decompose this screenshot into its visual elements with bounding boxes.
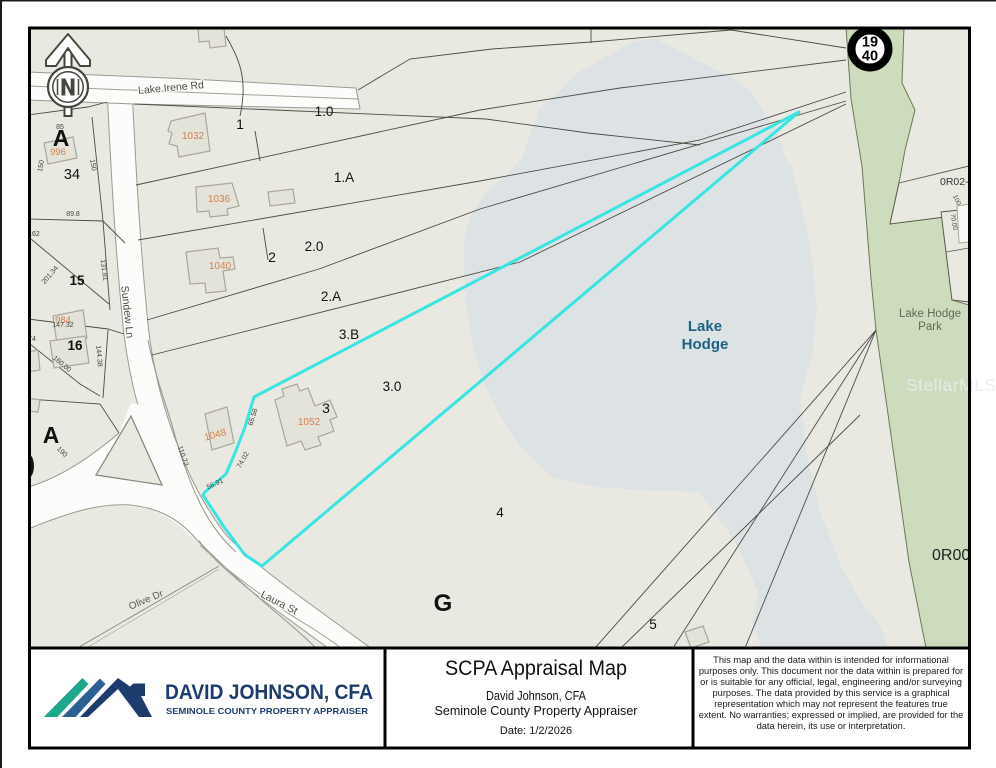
svg-text:A: A xyxy=(43,422,60,448)
svg-text:1.A: 1.A xyxy=(334,170,354,185)
svg-text:1040: 1040 xyxy=(209,261,232,272)
svg-text:3.B: 3.B xyxy=(339,327,359,342)
svg-text:or is suitable for any officia: or is suitable for any official, legal, … xyxy=(700,677,962,687)
svg-text:SEMINOLE COUNTY PROPERTY APPRA: SEMINOLE COUNTY PROPERTY APPRAISER xyxy=(166,706,368,716)
svg-text:Lake: Lake xyxy=(688,318,722,335)
svg-text:4: 4 xyxy=(496,505,504,520)
svg-text:G: G xyxy=(434,590,453,617)
svg-text:data herein, its use or interp: data herein, its use or interpretation. xyxy=(757,721,906,731)
svg-text:representation which may not r: representation which may not represent t… xyxy=(714,699,948,709)
svg-text:David Johnson, CFA: David Johnson, CFA xyxy=(486,688,586,703)
svg-text:15: 15 xyxy=(69,273,85,288)
svg-text:Lake Hodge: Lake Hodge xyxy=(899,308,961,320)
svg-text:DAVID JOHNSON, CFA: DAVID JOHNSON, CFA xyxy=(165,681,373,704)
svg-text:1032: 1032 xyxy=(182,131,205,142)
svg-text:16: 16 xyxy=(67,338,83,353)
svg-text:5: 5 xyxy=(649,617,657,632)
svg-text:1: 1 xyxy=(236,116,244,132)
svg-text:purposes only. This document n: purposes only. This document nor the dat… xyxy=(699,666,963,676)
svg-text:3: 3 xyxy=(322,400,330,416)
svg-text:40: 40 xyxy=(862,49,878,65)
svg-text:This map and the data within i: This map and the data within is intended… xyxy=(713,655,949,665)
svg-text:85: 85 xyxy=(56,124,64,131)
svg-text:Seminole County Property Appra: Seminole County Property Appraiser xyxy=(435,703,639,718)
svg-text:1.0: 1.0 xyxy=(315,104,334,119)
svg-text:34: 34 xyxy=(64,167,80,183)
svg-text:SCPA Appraisal Map: SCPA Appraisal Map xyxy=(445,657,627,680)
svg-text:extent. No warranties; express: extent. No warranties; expressed or impl… xyxy=(699,710,964,720)
svg-text:1036: 1036 xyxy=(208,194,231,205)
svg-text:2: 2 xyxy=(268,249,276,265)
svg-text:Hodge: Hodge xyxy=(682,336,729,353)
svg-text:Park: Park xyxy=(918,321,942,333)
svg-text:0R00: 0R00 xyxy=(932,547,970,564)
svg-text:996: 996 xyxy=(50,147,66,158)
svg-text:147.32: 147.32 xyxy=(52,322,74,329)
svg-text:3.0: 3.0 xyxy=(383,379,402,394)
svg-text:Date: 1/2/2026: Date: 1/2/2026 xyxy=(500,725,572,737)
svg-text:2.A: 2.A xyxy=(321,289,341,304)
svg-text:purposes. The data provided by: purposes. The data provided by this serv… xyxy=(712,688,949,698)
svg-text:89.8: 89.8 xyxy=(66,211,80,218)
svg-text:2.0: 2.0 xyxy=(305,239,324,254)
svg-text:1052: 1052 xyxy=(298,417,321,428)
svg-text:StellarMLS: StellarMLS xyxy=(906,375,996,395)
